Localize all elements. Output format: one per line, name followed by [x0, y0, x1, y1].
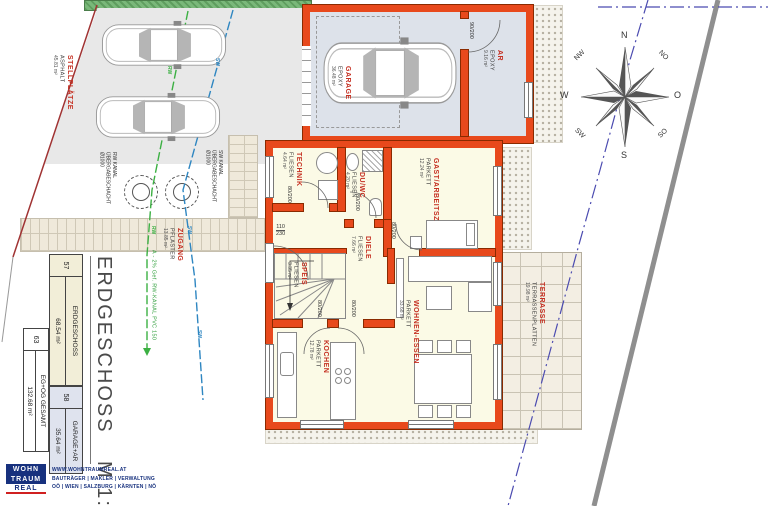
- room-material: EPOXY: [336, 66, 343, 100]
- label-wohnen-essen: WOHNEN-ESSEN PARKETT 33.68 m²: [398, 300, 419, 364]
- logo-traum: TRAUM: [6, 474, 46, 484]
- wall-duwc-bottom-l: [345, 220, 353, 227]
- room-material: PARKETT: [424, 158, 431, 221]
- wall-gast-bottom: [420, 249, 495, 256]
- company-services: BAUTRÄGER | MAKLER | VERWALTUNG: [52, 475, 156, 484]
- label-ar: AR EPOXY 9.16 m²: [482, 50, 503, 71]
- wall-kitchen-top-2: [328, 320, 338, 327]
- chair-6: [456, 405, 471, 418]
- ar-window: [524, 82, 533, 118]
- cooktop-burner-3: [335, 377, 342, 384]
- compass-rose: N S W O NW NO SW SO: [566, 34, 684, 158]
- room-name: GAST/ARBEITSZ: [431, 158, 439, 221]
- room-material: FLIESEN: [292, 262, 299, 288]
- company-info: WWW.WOHNTRAUMREAL.AT BAUTRÄGER | MAKLER …: [52, 466, 156, 492]
- window-kochen-bottom: [300, 420, 344, 429]
- dining-table: [414, 354, 472, 404]
- sw-tick-2: SW: [186, 226, 192, 234]
- gravel-right-of-house: [500, 147, 532, 250]
- dim-entry-width: 110: [276, 224, 285, 231]
- cooktop-burner-4: [344, 377, 351, 384]
- label-rw-kanal: RW KANAL ÜBERGABESCHACHT Ø1000: [98, 152, 117, 204]
- area-table-garage-ar: 58 GARAGE+AR 35.64 m²: [49, 386, 83, 474]
- label-terrasse: TERRASSE TERRASSENPLATTEN 19.98 m²: [524, 282, 545, 346]
- sw-tick-1: SW: [214, 58, 220, 66]
- room-area: 12.78 m²: [308, 340, 314, 373]
- label-sw-kanal: SW KANAL ÜBERGABESCHACHT Ø1000: [204, 150, 223, 202]
- company-website: WWW.WOHNTRAUMREAL.AT: [52, 466, 156, 475]
- dim-gast-door: 80/200: [390, 222, 396, 239]
- chair-2: [437, 340, 452, 353]
- dim-entry-height: 230: [276, 231, 285, 237]
- pillow: [466, 223, 475, 246]
- boiler: [316, 152, 338, 174]
- sofa-top: [408, 256, 492, 282]
- rw-tick-2: RW: [150, 226, 156, 234]
- label-stellplaetze: STELLPLÄTZE ASPHALT 45.81 m²: [52, 55, 73, 110]
- area-table-label: ERDGESCHOSS: [66, 277, 83, 385]
- area-table-no: 63: [24, 329, 48, 351]
- room-name: SPEIS: [299, 262, 307, 288]
- wall-duwc-right: [384, 148, 391, 227]
- area-table-no: 58: [50, 387, 82, 409]
- wall-kitchen-top-1: [273, 320, 302, 327]
- room-name: AR: [495, 50, 503, 71]
- wc: [369, 198, 382, 216]
- label-kochen: KOCHEN PARKETT 12.78 m²: [308, 340, 329, 373]
- room-area: 12.24 m²: [418, 158, 424, 221]
- manhole-rw-inner: [132, 183, 150, 201]
- cooktop-burner-1: [335, 368, 342, 375]
- room-material: PFLASTER: [168, 228, 175, 261]
- area-table-label: EG+OG GESAMT: [36, 351, 49, 451]
- compass-n: N: [621, 30, 628, 40]
- compass-w: W: [560, 90, 569, 100]
- chair-4: [418, 405, 433, 418]
- sw-kanal-line1: SW KANAL: [217, 150, 223, 202]
- dim-technik-door: 80/200: [286, 186, 292, 203]
- compass-o: O: [674, 90, 681, 100]
- area-table-value: 68.54 m²: [50, 277, 66, 385]
- nightstand: [410, 236, 422, 249]
- dim-kochen-door-left: 80/200: [316, 300, 322, 317]
- technik-unit: [318, 180, 338, 200]
- window-kochen-left: [265, 344, 274, 398]
- label-zugang: ZUGANG PFLASTER 13.85 m²: [162, 228, 183, 261]
- rw-tick-1: RW: [166, 66, 172, 74]
- dim-duwc-door: 80/200: [354, 194, 360, 211]
- dim-garage-ar-door: 90/200: [468, 22, 474, 39]
- kitchen-sink: [280, 352, 294, 376]
- chair-3: [456, 340, 471, 353]
- kitchen-island: [330, 342, 356, 420]
- garage-ar-divider-wall-upper: [461, 12, 468, 18]
- area-table-value: 132.68 m²: [24, 351, 36, 451]
- gravel-south-strip: [265, 428, 538, 444]
- window-technik-left: [265, 156, 274, 198]
- terrace-door: [493, 262, 502, 306]
- room-material: FLIESEN: [287, 152, 294, 187]
- chair-1: [418, 340, 433, 353]
- room-name: KOCHEN: [321, 340, 329, 373]
- chair-5: [437, 405, 452, 418]
- staircase: [274, 253, 346, 319]
- logo-wohn: WOHN: [6, 464, 46, 474]
- label-gast-arbeitsz: GAST/ARBEITSZ PARKETT 12.24 m²: [418, 158, 439, 221]
- company-regions: OÖ | WIEN | SALZBURG | KÄRNTEN | NÖ: [52, 483, 156, 492]
- paving-strip-vertical: [228, 135, 258, 218]
- label-technik: TECHNIK FLIESEN 4.64 m²: [281, 152, 302, 187]
- compass-s: S: [621, 150, 627, 160]
- parked-car-1: [100, 20, 228, 70]
- floorplan-canvas: N S W O NW NO SW SO STELLPLÄTZE ASPHALT …: [0, 0, 768, 506]
- room-name: GARAGE: [343, 66, 351, 100]
- gravel-right-of-ar: [533, 5, 563, 143]
- title-underline: [90, 256, 91, 464]
- cooktop-burner-2: [344, 368, 351, 375]
- window-gast-right: [493, 166, 502, 216]
- title-text: ERDGESCHOSS: [93, 256, 115, 434]
- wall-diele-stub: [388, 249, 394, 283]
- wall-technik-bottom: [273, 204, 303, 211]
- rw-kanal-line2: ÜBERGABESCHACHT: [104, 152, 110, 204]
- dim-entry-door: 110 230: [276, 224, 285, 237]
- garage-ar-divider-wall-lower: [461, 50, 468, 136]
- room-material: FLIESEN: [356, 236, 363, 262]
- room-name: TERRASSE: [537, 282, 545, 346]
- area-table-value: 35.64 m²: [50, 409, 66, 473]
- shower: [362, 150, 383, 172]
- coffee-table: [426, 286, 452, 310]
- label-garage: GARAGE EPOXY 36.48 m²: [330, 66, 351, 100]
- area-table-no: 57: [50, 255, 82, 277]
- manhole-sw-inner: [173, 183, 191, 201]
- window-wohnen-right: [493, 344, 502, 400]
- room-material: PARKETT: [404, 300, 411, 364]
- room-area: 36.48 m²: [330, 66, 336, 100]
- room-name: DIELE: [363, 236, 371, 262]
- washbasin: [346, 153, 359, 171]
- label-speis: SPEIS FLIESEN 3.35 m²: [286, 262, 307, 288]
- rw-slope-note: A - 2% Gef. RW-KANAL PVC 150: [150, 250, 157, 340]
- room-area: 33.68 m²: [398, 300, 404, 364]
- paving-walkway: [20, 218, 270, 252]
- parked-car-2: [94, 92, 222, 142]
- entry-door-opening: [265, 243, 274, 283]
- company-logo: WOHN TRAUM REAL: [6, 464, 46, 494]
- window-essen-bottom: [408, 420, 454, 429]
- room-material: PARKETT: [314, 340, 321, 373]
- room-name: TECHNIK: [294, 152, 302, 187]
- room-name: ZUGANG: [175, 228, 183, 261]
- room-name: STELLPLÄTZE: [65, 55, 73, 110]
- room-name: WOHNEN-ESSEN: [411, 300, 419, 364]
- garage-door-opening: [302, 46, 311, 126]
- area-table-gesamt: 63 EG+OG GESAMT 132.68 m²: [23, 328, 49, 452]
- room-material: ASPHALT: [58, 55, 65, 110]
- room-material: EPOXY: [488, 50, 495, 71]
- sw-tick-3: SW: [196, 330, 202, 338]
- area-table-erdgeschoss: 57 ERDGESCHOSS 68.54 m²: [49, 254, 83, 386]
- dim-kochen-door-right: 80/200: [350, 300, 356, 317]
- sw-kanal-line2: ÜBERGABESCHACHT: [210, 150, 216, 202]
- label-diele: DIELE FLIESEN 7.66 m²: [350, 236, 371, 262]
- room-material: TERRASSENPLATTEN: [530, 282, 537, 346]
- area-table-label: GARAGE+AR: [66, 409, 83, 473]
- logo-real: REAL: [6, 484, 46, 494]
- sofa-right: [468, 282, 492, 312]
- wall-kitchen-top-3: [364, 320, 394, 327]
- rw-kanal-line1: RW KANAL: [111, 152, 117, 204]
